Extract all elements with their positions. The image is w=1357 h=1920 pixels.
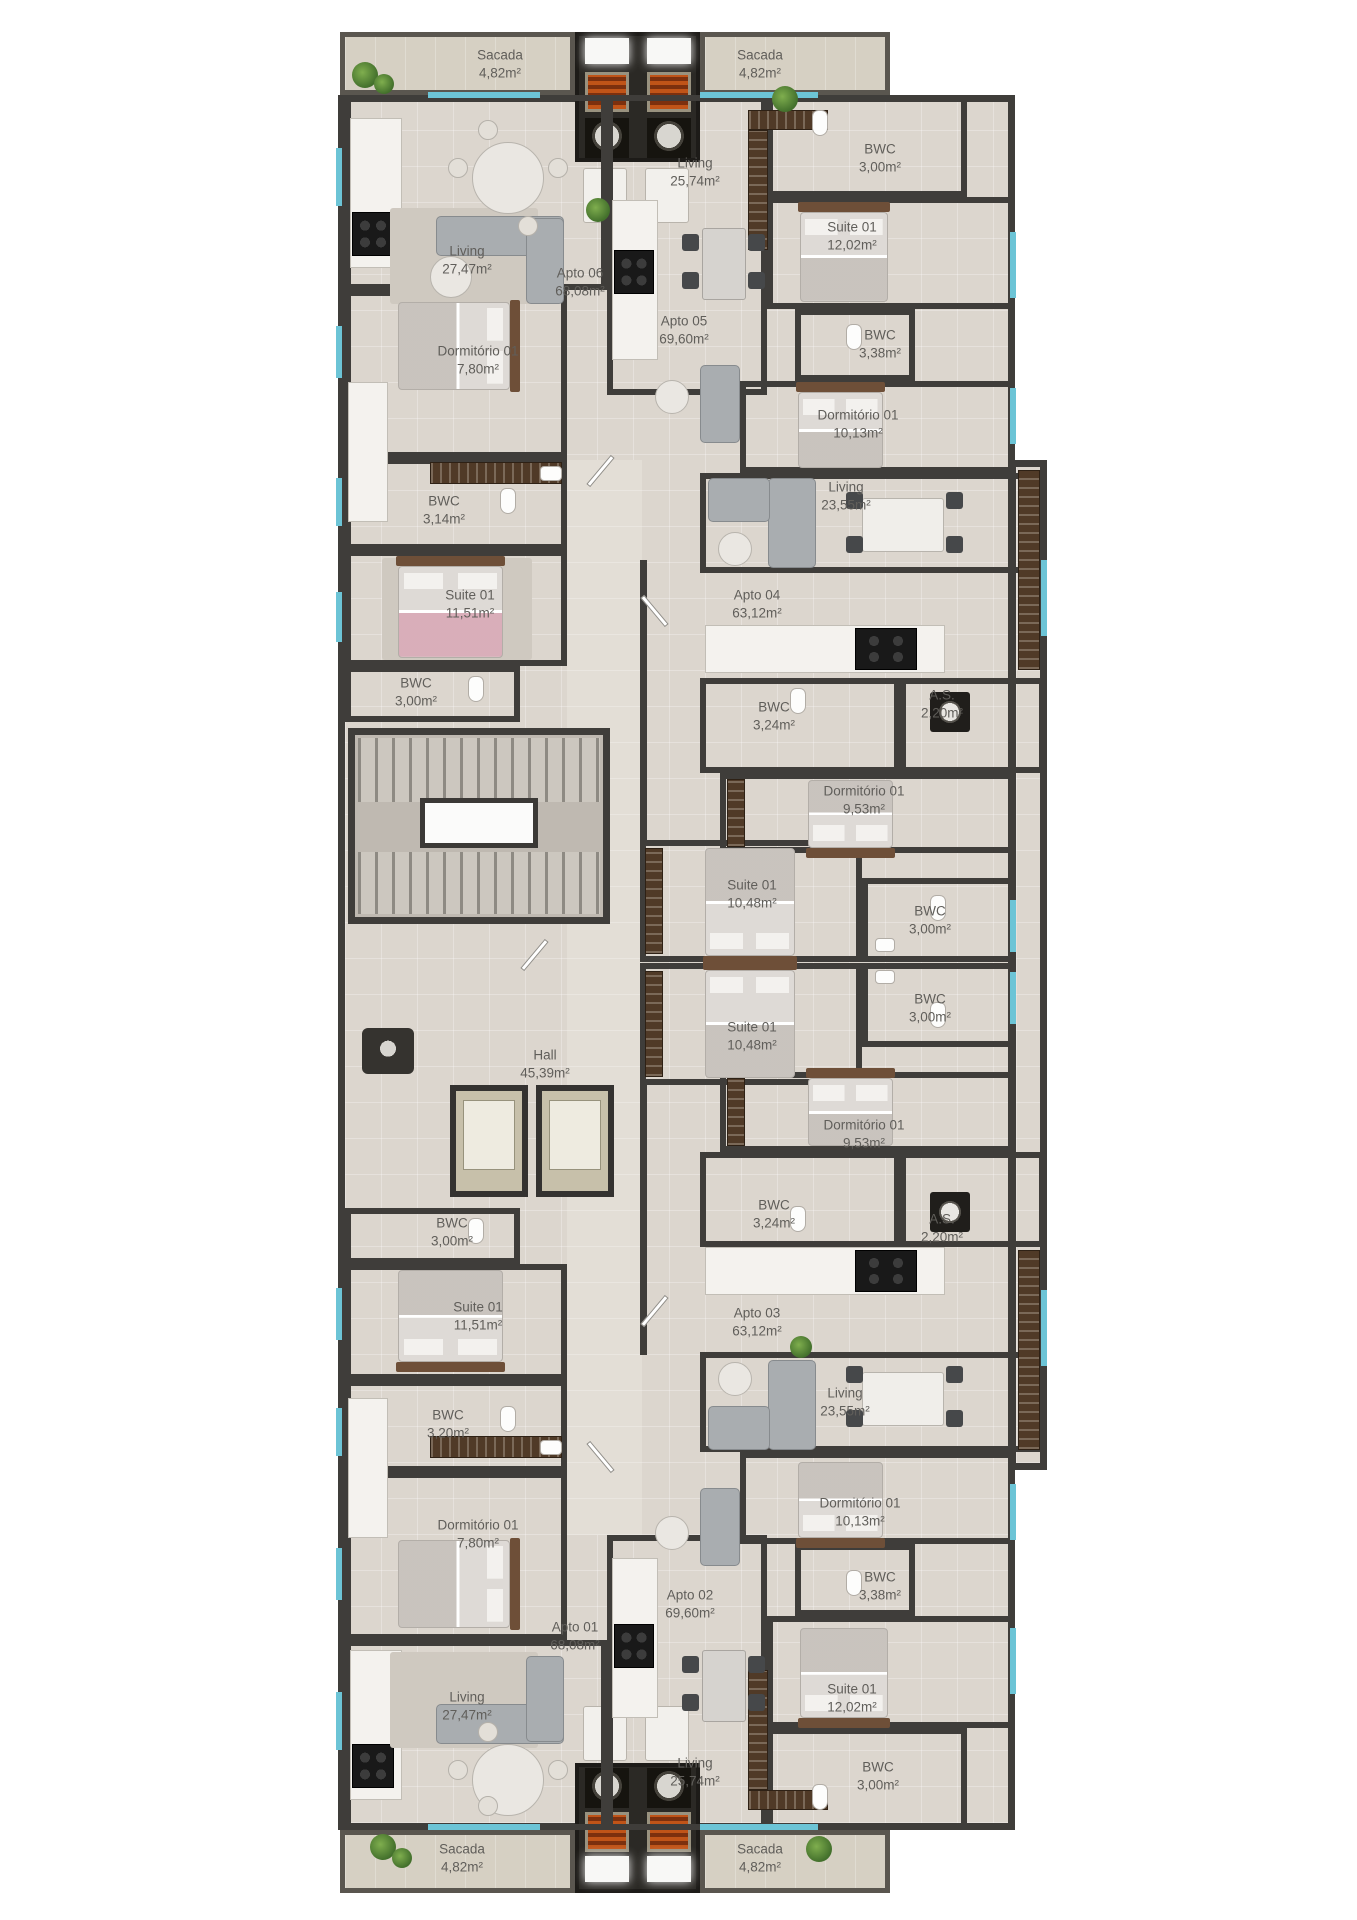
wardrobe <box>748 1670 768 1790</box>
skylight-icon <box>647 1856 691 1882</box>
label-living-2574-top: Living25,74m² <box>670 154 720 189</box>
window-glass <box>428 92 540 98</box>
label-apto-03: Apto 0363,12m² <box>732 1304 782 1339</box>
label-suite-1202-bottom: Suite 0112,02m² <box>827 1680 877 1715</box>
bed-dormitorio-apto01 <box>398 1540 510 1628</box>
dining-table-apto05 <box>702 228 746 300</box>
label-apto-04: Apto 0463,12m² <box>732 586 782 621</box>
cooktop-icon <box>352 212 394 256</box>
wardrobe <box>727 1078 745 1146</box>
plant-icon <box>374 74 394 94</box>
label-apto-06: Apto 0668,08m² <box>555 264 605 299</box>
label-suite-1151-top: Suite 0111,51m² <box>445 586 495 621</box>
plant-icon <box>392 1848 412 1868</box>
chair <box>748 272 765 289</box>
chair <box>478 1796 498 1816</box>
sofa-apto04-seat <box>708 478 770 522</box>
window-glass <box>336 148 342 206</box>
label-bwc-338-apto05: BWC3,38m² <box>859 326 901 361</box>
label-sacada-top-left: Sacada4,82m² <box>477 46 523 81</box>
window-glass <box>336 1692 342 1750</box>
label-bwc-324-apto04: BWC3,24m² <box>753 698 795 733</box>
sofa-apto03-seat <box>708 1406 770 1450</box>
toilet-icon <box>812 1784 828 1810</box>
window-glass <box>1010 972 1016 1024</box>
chair <box>478 120 498 140</box>
window-glass <box>336 478 342 526</box>
label-suite-1048-apto04: Suite 0110,48m² <box>727 876 777 911</box>
stair-landing <box>420 798 538 848</box>
sofa-apto03 <box>768 1360 816 1450</box>
chair <box>548 1760 568 1780</box>
label-living-2747-bottom: Living27,47m² <box>442 1688 492 1723</box>
label-suite-1151-bottom: Suite 0111,51m² <box>453 1298 503 1333</box>
label-suite-1048-apto03: Suite 0110,48m² <box>727 1018 777 1053</box>
chair <box>748 234 765 251</box>
label-dormitorio-953-apto03: Dormitório 019,53m² <box>823 1116 904 1151</box>
window-glass <box>336 1408 342 1456</box>
chair <box>846 1366 863 1383</box>
label-apto-02: Apto 0269,60m² <box>665 1586 715 1621</box>
label-dormitorio-780-bottom: Dormitório 017,80m² <box>437 1516 518 1551</box>
balcony-top-right <box>700 32 890 95</box>
chair <box>682 1656 699 1673</box>
label-dormitorio-780-top: Dormitório 017,80m² <box>437 342 518 377</box>
window-glass <box>1041 1290 1047 1366</box>
wardrobe <box>1018 470 1040 670</box>
label-living-2747-top: Living27,47m² <box>442 242 492 277</box>
label-sacada-bottom-right: Sacada4,82m² <box>737 1840 783 1875</box>
kitchen-appliance-column <box>348 382 388 522</box>
wardrobe <box>645 971 663 1077</box>
room-bwc324-apto03 <box>700 1152 900 1247</box>
sofa-apto04 <box>768 478 816 568</box>
label-suite-1202-top: Suite 0112,02m² <box>827 218 877 253</box>
plant-icon <box>790 1336 812 1358</box>
chair <box>946 492 963 509</box>
window-glass <box>700 92 818 98</box>
label-apto-05: Apto 0569,60m² <box>659 312 709 347</box>
label-sacada-top-right: Sacada4,82m² <box>737 46 783 81</box>
window-glass <box>1010 900 1016 952</box>
sink-icon <box>540 466 562 481</box>
elevator-car <box>549 1100 601 1170</box>
chair <box>946 1366 963 1383</box>
label-living-2574-bottom: Living25,74m² <box>670 1754 720 1789</box>
plant-icon <box>586 198 610 222</box>
window-glass <box>428 1824 540 1830</box>
chair <box>946 1410 963 1427</box>
coffee-table-apto02 <box>655 1516 689 1550</box>
plant-icon <box>806 1836 832 1862</box>
dining-table-apto02 <box>702 1650 746 1722</box>
label-dormitorio-953-apto04: Dormitório 019,53m² <box>823 782 904 817</box>
sofa-apto01-chaise <box>526 1656 564 1742</box>
hall-corridor-floor <box>567 460 642 1535</box>
kitchen-appliance-column <box>348 1398 388 1538</box>
skylight-icon <box>585 1856 629 1882</box>
service-cart-icon <box>362 1028 414 1074</box>
window-glass <box>336 326 342 378</box>
wardrobe <box>645 848 663 954</box>
wardrobe <box>1018 1250 1040 1450</box>
dining-table-apto06 <box>472 142 544 214</box>
chair <box>682 272 699 289</box>
chair <box>478 1722 498 1742</box>
sink-icon <box>875 970 895 984</box>
toilet-icon <box>812 110 828 136</box>
coffee-table-apto05 <box>655 380 689 414</box>
chair <box>748 1656 765 1673</box>
sofa-apto05 <box>700 365 740 443</box>
toilet-icon <box>468 676 484 702</box>
label-hall: Hall45,39m² <box>520 1046 570 1081</box>
dining-table-apto03 <box>862 1372 944 1426</box>
label-bwc-324-apto03: BWC3,24m² <box>753 1196 795 1231</box>
cooktop-icon <box>855 628 917 670</box>
chair <box>518 216 538 236</box>
label-as-220-apto04: A.S.2,20m² <box>921 686 963 721</box>
label-as-220-apto03: A.S.2,20m² <box>921 1210 963 1245</box>
wardrobe <box>748 130 768 250</box>
chair <box>846 536 863 553</box>
label-bwc-300-apto05: BWC3,00m² <box>859 140 901 175</box>
label-bwc-300-apto01: BWC3,00m² <box>431 1214 473 1249</box>
window-glass <box>1010 1484 1016 1540</box>
window-glass <box>1010 1628 1016 1694</box>
stair-treads <box>358 852 600 914</box>
toilet-icon <box>500 1406 516 1432</box>
stair-treads <box>358 738 600 802</box>
chair <box>748 1694 765 1711</box>
chair <box>448 158 468 178</box>
elevator-car <box>463 1100 515 1170</box>
coffee-table-apto04 <box>718 532 752 566</box>
sink-icon <box>875 938 895 952</box>
label-bwc-314-apto06: BWC3,14m² <box>423 492 465 527</box>
balcony-bottom-right <box>700 1830 890 1893</box>
label-bwc-300-apto03: BWC3,00m² <box>909 990 951 1025</box>
label-living-2355-top: Living23,55m² <box>821 478 871 513</box>
label-dormitorio-1013-bottom: Dormitório 0110,13m² <box>819 1494 900 1529</box>
window-glass <box>700 1824 818 1830</box>
cooktop-icon <box>614 1624 654 1668</box>
label-apto-01: Apto 0168,08m² <box>550 1618 600 1653</box>
label-bwc-300-apto04: BWC3,00m² <box>909 902 951 937</box>
window-glass <box>336 1288 342 1340</box>
cooktop-icon <box>855 1250 917 1292</box>
coffee-table-apto03 <box>718 1362 752 1396</box>
label-bwc-300-apto02: BWC3,00m² <box>857 1758 899 1793</box>
chair <box>682 234 699 251</box>
chair <box>548 158 568 178</box>
skylight-icon <box>585 38 629 64</box>
label-dormitorio-1013-top: Dormitório 0110,13m² <box>817 406 898 441</box>
skylight-icon <box>647 38 691 64</box>
window-glass <box>336 592 342 642</box>
label-sacada-bottom-left: Sacada4,82m² <box>439 1840 485 1875</box>
label-bwc-338-apto02: BWC3,38m² <box>859 1568 901 1603</box>
label-living-2355-bottom: Living23,55m² <box>820 1384 870 1419</box>
sofa-apto02 <box>700 1488 740 1566</box>
plant-icon <box>772 86 798 112</box>
toilet-icon <box>500 488 516 514</box>
dining-table-apto04 <box>862 498 944 552</box>
chair <box>448 1760 468 1780</box>
wardrobe <box>727 779 745 847</box>
label-bwc-320-apto01: BWC3,20m² <box>427 1406 469 1441</box>
label-bwc-300-apto06: BWC3,00m² <box>395 674 437 709</box>
floor-plan-canvas: Sacada4,82m²Sacada4,82m²Living25,74m²BWC… <box>0 0 1357 1920</box>
cooktop-icon <box>352 1744 394 1788</box>
chair <box>946 536 963 553</box>
window-glass <box>336 1548 342 1600</box>
sink-icon <box>540 1440 562 1455</box>
window-glass <box>1010 232 1016 298</box>
chair <box>682 1694 699 1711</box>
cooktop-icon <box>614 250 654 294</box>
window-glass <box>1041 560 1047 636</box>
window-glass <box>1010 388 1016 444</box>
corridor-wall <box>640 1085 647 1355</box>
